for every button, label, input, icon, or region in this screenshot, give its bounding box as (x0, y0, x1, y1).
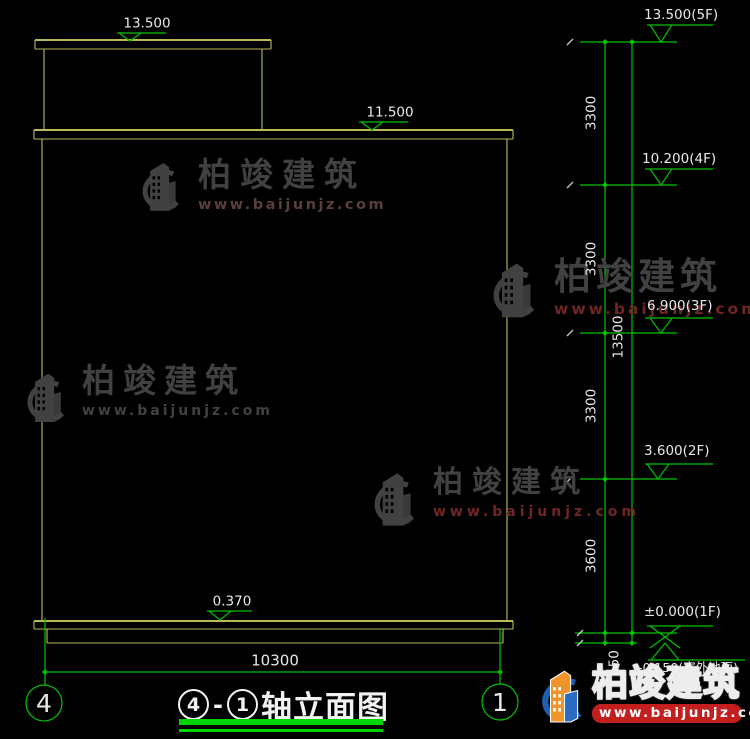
brand-url-badge: www.baijunjz.com (592, 704, 742, 723)
level-label-2f: 3.600(2F) (644, 445, 710, 459)
title-underline-thick (179, 719, 383, 725)
dim-label-floor4: 3300 (585, 242, 599, 276)
axis-bubble-right-number: 1 (492, 688, 508, 717)
level-label-4f: 10.200(4F) (642, 153, 716, 167)
dim-label-floor5: 3300 (585, 96, 599, 130)
watermark-url-text: www.baijunjz.com (82, 404, 273, 418)
axis-bubble-left: 4 (26, 685, 62, 721)
elevation-label-plinth: 0.370 (213, 595, 252, 609)
level-label-3f: 6.900(3F) (647, 300, 713, 314)
width-dim-label: 10300 (251, 654, 299, 669)
watermark: 柏竣建筑 www.baijunjz.com (20, 364, 273, 440)
axis-bubble-left-number: 4 (36, 689, 52, 718)
watermark-logo-icon (366, 468, 421, 540)
title-axis-left-bubble: 4 (178, 689, 209, 720)
watermark-logo-icon (134, 158, 186, 224)
dim-label-floor2: 3600 (585, 539, 599, 573)
cad-elevation-screenshot: 柏竣建筑 www.baijunjz.com 柏竣建筑 www.baijunjz.… (0, 0, 750, 739)
watermark: 柏竣建筑 www.baijunjz.com (366, 468, 640, 540)
watermark-brand-text: 柏竣建筑 (198, 158, 386, 191)
watermark: 柏竣建筑 www.baijunjz.com (134, 158, 386, 224)
title-axis-right-number: 1 (236, 694, 249, 716)
brand-logo: 柏竣建筑 www.baijunjz.com (534, 666, 742, 736)
elevation-label-main-roof: 11.500 (366, 106, 413, 120)
watermark-url-text: www.baijunjz.com (433, 505, 640, 519)
watermark-logo-icon (484, 258, 542, 332)
level-label-1f: ±0.000(1F) (644, 606, 721, 620)
brand-name-text: 柏竣建筑 (592, 666, 742, 702)
elevation-label-penthouse-roof: 13.500 (123, 17, 170, 31)
watermark-brand-text: 柏竣建筑 (82, 364, 273, 397)
tick-marks (567, 39, 583, 646)
watermark-logo-icon (20, 364, 70, 440)
axis-bubble-right: 1 (482, 684, 518, 720)
brand-logo-icon (534, 666, 588, 736)
overall-height-label: 13500 (612, 316, 626, 359)
dim-label-floor3: 3300 (585, 389, 599, 423)
building-outline (34, 40, 513, 643)
title-axis-right-bubble: 1 (227, 689, 258, 720)
watermark-url-text: www.baijunjz.com (198, 198, 386, 213)
title-axis-left-number: 4 (187, 694, 200, 716)
title-separator: - (213, 691, 223, 719)
title-underline-thin (179, 729, 383, 732)
level-label-5f: 13.500(5F) (644, 9, 718, 23)
watermark-brand-text: 柏竣建筑 (433, 468, 640, 498)
